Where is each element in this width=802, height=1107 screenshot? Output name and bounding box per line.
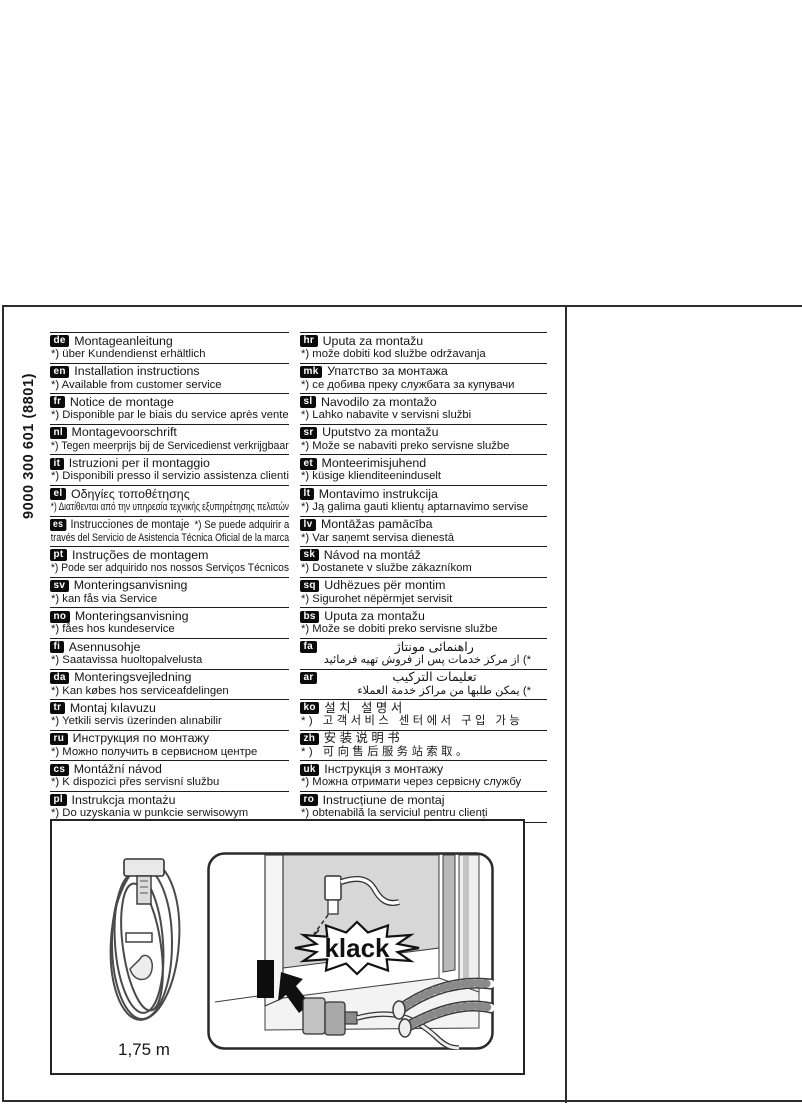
language-entry-de: deMontageanleitung*) über Kundendienst e… — [50, 332, 289, 363]
language-title-row: arتعليمات التركيب — [300, 671, 547, 685]
language-title-row: frNotice de montage — [50, 396, 289, 410]
language-title: Οδηγίες τοποθέτησης — [71, 488, 190, 501]
language-title: Monteringsanvisning — [75, 610, 189, 623]
language-title-row: ruИнструкция по монтажу — [50, 732, 289, 746]
language-title: Montaj kılavuzu — [70, 702, 156, 715]
language-code-badge: no — [50, 611, 70, 623]
language-entry-sl: slNavodilo za montažo*) Lahko nabavite v… — [300, 393, 547, 424]
language-entry-zh: zh安装说明书*) 可向售后服务站索取。 — [300, 730, 547, 761]
language-note: *) obtenabilă la serviciul pentru clienț… — [300, 807, 547, 820]
language-note: *) Može se dobiti preko servisne službe — [300, 623, 547, 636]
language-code-badge: zh — [300, 733, 319, 745]
language-code-badge: sk — [300, 549, 319, 561]
language-note: *) Dostanete v službe zákazníkom — [300, 562, 547, 575]
language-note: *) 고객서비스 센터에서 구입 가능 — [300, 715, 547, 728]
language-column-left: deMontageanleitung*) über Kundendienst e… — [50, 332, 289, 853]
language-code-badge: mk — [300, 366, 322, 378]
language-code-badge: uk — [300, 764, 319, 776]
installation-figure-panel: 1,75 m — [50, 819, 525, 1075]
language-column-right: hrUputa za montažu*) može dobiti kod slu… — [300, 332, 547, 823]
language-title: Istruzioni per il montaggio — [69, 457, 210, 470]
language-title-row: ukІнструкція з монтажу — [300, 763, 547, 777]
language-code-badge: it — [50, 458, 64, 470]
language-code-badge: fa — [300, 641, 317, 653]
language-code-badge: sl — [300, 396, 316, 408]
language-entry-ko: ko설치 설명서*) 고객서비스 센터에서 구입 가능 — [300, 699, 547, 730]
language-title-row: daMonteringsvejledning — [50, 671, 289, 685]
language-title-row: bsUputa za montažu — [300, 610, 547, 624]
language-code-badge: da — [50, 672, 69, 684]
language-code-badge: cs — [50, 764, 69, 776]
language-title: Notice de montage — [70, 396, 174, 409]
language-title-row: trMontaj kılavuzu — [50, 702, 289, 716]
language-title: تعليمات التركيب — [322, 671, 547, 684]
language-code-badge: tr — [50, 702, 65, 714]
language-entry-it: itIstruzioni per il montaggio*) Disponib… — [50, 454, 289, 485]
language-entry-uk: ukІнструкція з монтажу*) Можна отримати … — [300, 760, 547, 791]
language-title: Udhëzues për montim — [324, 579, 445, 592]
language-entry-fr: frNotice de montage*) Disponible par le … — [50, 393, 289, 424]
language-note: *) Yetkili servis üzerinden alınabilir — [50, 715, 289, 728]
language-entry-cs: csMontážní návod*) K dispozici přes serv… — [50, 760, 289, 791]
language-title: Monteerimisjuhend — [322, 457, 427, 470]
language-title-row: enInstallation instructions — [50, 365, 289, 379]
language-title: Monteringsanvisning — [74, 579, 188, 592]
language-note: *) küsige klienditeeninduselt — [300, 470, 547, 483]
language-note: *) Var saņemt servisa dienestā — [300, 532, 547, 545]
language-title-row: sqUdhëzues për montim — [300, 579, 547, 593]
language-code-badge: ko — [300, 702, 319, 714]
language-title-row: hrUputa za montažu — [300, 335, 547, 349]
language-title-row: nlMontagevoorschrift — [50, 426, 289, 440]
language-title: Uputa za montažu — [324, 610, 425, 623]
language-entry-mk: mkУпатство за монтажа*) се добива преку … — [300, 363, 547, 394]
language-title: Instrucțiune de montaj — [323, 794, 445, 807]
language-note: *) 可向售后服务站索取。 — [300, 746, 547, 759]
language-title: Uputa za montažu — [323, 335, 424, 348]
language-title: Instruções de montagem — [72, 549, 208, 562]
language-note-inline: *) Se puede adquirir a — [194, 519, 290, 532]
language-title-row: faراهنمائی مونتاژ — [300, 640, 547, 654]
language-note: *) Можно получить в сервисном центре — [50, 746, 289, 759]
language-title: 설치 설명서 — [324, 702, 405, 715]
language-title-row: svMonteringsanvisning — [50, 579, 289, 593]
coiled-cable-illustration — [82, 851, 206, 1031]
language-title-row: roInstrucțiune de montaj — [300, 793, 547, 807]
language-title: Monteringsvejledning — [74, 671, 191, 684]
language-note: *) Available from customer service — [50, 379, 289, 392]
language-entry-lv: lvMontāžas pamācība*) Var saņemt servisa… — [300, 516, 547, 547]
language-entry-hr: hrUputa za montažu*) može dobiti kod slu… — [300, 332, 547, 363]
language-entry-nl: nlMontagevoorschrift*) Tegen meerprijs b… — [50, 424, 289, 455]
language-title: Упатство за монтажа — [327, 365, 448, 378]
language-entry-sk: skNávod na montáž*) Dostanete v službe z… — [300, 546, 547, 577]
language-code-badge: fi — [50, 641, 64, 653]
language-note: *) Pode ser adquirido nos nossos Serviço… — [50, 562, 268, 575]
language-note: *) Saatavissa huoltopalvelusta — [50, 654, 289, 667]
plug-body — [124, 859, 164, 876]
language-code-badge: sq — [300, 580, 319, 592]
language-title: Montageanleitung — [74, 335, 173, 348]
page-fold-divider — [565, 305, 567, 1103]
language-note: *) fåes hos kundeservice — [50, 623, 289, 636]
plug-neck — [137, 876, 151, 904]
language-entry-tr: trMontaj kılavuzu*) Yetkili servis üzeri… — [50, 699, 289, 730]
language-title-row: etMonteerimisjuhend — [300, 457, 547, 471]
language-title: Montavimo instrukcija — [319, 488, 438, 501]
language-note: *) Sigurohet nëpërmjet servisit — [300, 593, 547, 606]
rail-dark — [443, 855, 455, 972]
language-entry-ar: arتعليمات التركيب*) يمكن طلبها من مراكز … — [300, 669, 547, 700]
language-note: *) može dobiti kod službe održavanja — [300, 348, 547, 361]
language-entry-da: daMonteringsvejledning*) Kan købes hos s… — [50, 669, 289, 700]
language-note: través del Servicio de Asistencia Técnic… — [50, 532, 239, 545]
language-entry-fi: fiAsennusohje*) Saatavissa huoltopalvelu… — [50, 638, 289, 669]
language-title-row: elΟδηγίες τοποθέτησης — [50, 487, 289, 501]
language-entry-sq: sqUdhëzues për montim*) Sigurohet nëpërm… — [300, 577, 547, 608]
language-code-badge: fr — [50, 396, 65, 408]
language-title-row: plInstrukcja montażu — [50, 793, 289, 807]
language-note: *) Lahko nabavite v servisni službi — [300, 409, 547, 422]
language-title: Montagevoorschrift — [72, 426, 177, 439]
language-note: *) се добива преку службата за купувачи — [300, 379, 547, 392]
language-code-badge: sr — [300, 427, 317, 439]
language-entry-lt: ltMontavimo instrukcija*) Ją galima gaut… — [300, 485, 547, 516]
language-code-badge: sv — [50, 580, 69, 592]
language-title-row: skNávod na montáž — [300, 549, 547, 563]
power-cable-figure: 1,75 m — [82, 851, 206, 1060]
language-title-row: csMontážní návod — [50, 763, 289, 777]
cable-tie — [126, 933, 152, 942]
language-code-badge: hr — [300, 335, 318, 347]
language-code-badge: lv — [300, 519, 316, 531]
klack-label: klack — [324, 933, 390, 963]
language-title-row: itIstruzioni per il montaggio — [50, 457, 289, 471]
language-title: Asennusohje — [69, 641, 141, 654]
language-note: *) Tegen meerprijs bij de Servicedienst … — [50, 440, 273, 453]
language-code-badge: pt — [50, 549, 67, 561]
language-note: *) Можна отримати через сервісну службу — [300, 776, 547, 789]
language-code-badge: en — [50, 366, 69, 378]
language-title-row: slNavodilo za montažo — [300, 396, 547, 410]
language-title-row: mkУпатство за монтажа — [300, 365, 547, 379]
language-entry-ru: ruИнструкция по монтажу*) Можно получить… — [50, 730, 289, 761]
language-code-badge: de — [50, 335, 69, 347]
language-note: *) K dispozici přes servisní službu — [50, 776, 289, 789]
language-title-row: ptInstruções de montagem — [50, 549, 289, 563]
language-list: deMontageanleitung*) über Kundendienst e… — [50, 332, 547, 853]
language-note: *) Do uzyskania w punkcie serwisowym — [50, 807, 289, 820]
language-title: Інструкція з монтажу — [324, 763, 443, 776]
language-title-row: srUputstvo za montažu — [300, 426, 547, 440]
language-code-badge: bs — [300, 611, 319, 623]
language-code-badge: el — [50, 488, 66, 500]
language-title: Installation instructions — [74, 365, 199, 378]
product-code-vertical: 9000 300 601 (8801) — [21, 373, 37, 519]
language-entry-es: esInstrucciones de montaje*) Se puede ad… — [50, 516, 289, 547]
language-note: *) über Kundendienst erhältlich — [50, 348, 289, 361]
language-entry-sr: srUputstvo za montažu*) Može se nabaviti… — [300, 424, 547, 455]
language-note: *) kan fås via Service — [50, 593, 289, 606]
language-title-row: deMontageanleitung — [50, 335, 289, 349]
language-title-row: zh安装说明书 — [300, 732, 547, 746]
language-note: *) Διατίθενται από την υπηρεσία τεχνικής… — [50, 501, 226, 514]
language-code-badge: nl — [50, 427, 67, 439]
language-code-badge: ar — [300, 672, 317, 684]
language-code-badge: ro — [300, 794, 318, 806]
language-title-row: esInstrucciones de montaje*) Se puede ad… — [50, 518, 256, 532]
language-entry-no: noMonteringsanvisning*) fåes hos kundese… — [50, 607, 289, 638]
language-title: Инструкция по монтажу — [73, 732, 210, 745]
language-entry-pt: ptInstruções de montagem*) Pode ser adqu… — [50, 546, 289, 577]
language-title: Instrukcja montażu — [72, 794, 176, 807]
language-entry-et: etMonteerimisjuhend*) küsige klienditeen… — [300, 454, 547, 485]
language-title: 安装说明书 — [324, 732, 403, 745]
language-title: Montāžas pamācība — [321, 518, 433, 531]
language-note: *) Disponibili presso il servizio assist… — [50, 470, 289, 483]
language-entry-fa: faراهنمائی مونتاژ*) از مرکز خدمات پس از … — [300, 638, 547, 669]
language-entry-en: enInstallation instructions*) Available … — [50, 363, 289, 394]
language-code-badge: ru — [50, 733, 68, 745]
language-entry-pl: plInstrukcja montażu*) Do uzyskania w pu… — [50, 791, 289, 822]
language-title: راهنمائی مونتاژ — [322, 641, 548, 654]
language-note: *) از مرکز خدمات پس از فروش تهیه فرمائید — [300, 654, 547, 667]
language-code-badge: es — [50, 519, 66, 531]
language-title-row: noMonteringsanvisning — [50, 610, 289, 624]
language-title: Montážní návod — [74, 763, 162, 776]
language-code-badge: et — [300, 458, 317, 470]
language-note: *) يمكن طلبها من مراكز خدمة العملاء — [300, 685, 547, 698]
language-title-row: fiAsennusohje — [50, 640, 289, 654]
language-title-row: ltMontavimo instrukcija — [300, 487, 547, 501]
language-note: *) Može se nabaviti preko servisne služb… — [300, 440, 547, 453]
language-entry-el: elΟδηγίες τοποθέτησης*) Διατίθενται από … — [50, 485, 289, 516]
language-entry-sv: svMonteringsanvisning*) kan fås via Serv… — [50, 577, 289, 608]
language-code-badge: pl — [50, 794, 67, 806]
language-title: Instrucciones de montaje — [70, 518, 189, 531]
language-title: Uputstvo za montažu — [322, 426, 438, 439]
appliance-rear-illustration: klack — [207, 852, 494, 1050]
socket-slot — [257, 960, 274, 998]
cable-length-label: 1,75 m — [82, 1040, 206, 1060]
language-title: Návod na montáž — [324, 549, 421, 562]
language-note: *) Ją galima gauti klientų aptarnavimo s… — [300, 501, 547, 514]
language-entry-ro: roInstrucțiune de montaj*) obtenabilă la… — [300, 791, 547, 822]
language-entry-bs: bsUputa za montažu*) Može se dobiti prek… — [300, 607, 547, 638]
language-title-row: lvMontāžas pamācība — [300, 518, 547, 532]
language-note: *) Kan købes hos serviceafdelingen — [50, 685, 289, 698]
rail-stripe — [463, 856, 469, 990]
cable-loop-end — [130, 955, 152, 979]
language-note: *) Disponible par le biais du service ap… — [50, 409, 288, 422]
language-code-badge: lt — [300, 488, 314, 500]
language-title-row: ko설치 설명서 — [300, 702, 547, 716]
language-title: Navodilo za montažo — [321, 396, 437, 409]
